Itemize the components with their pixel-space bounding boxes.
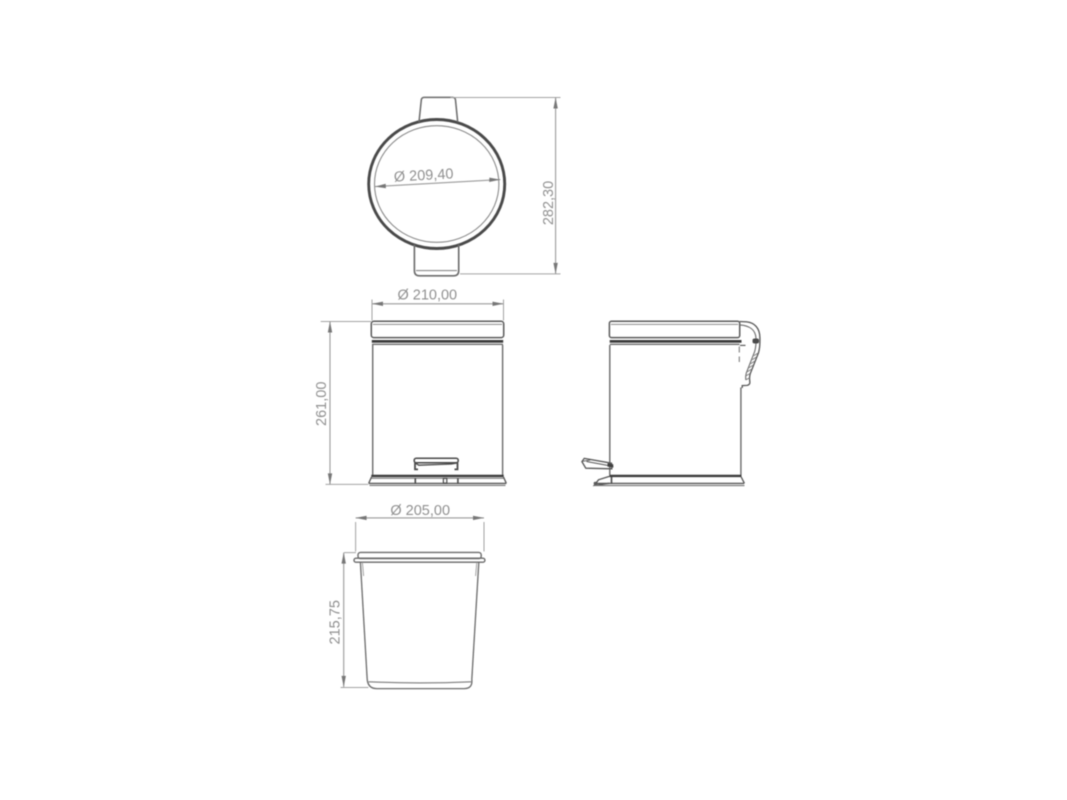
svg-text:261,00: 261,00 bbox=[314, 382, 330, 426]
svg-text:Ø 209,40: Ø 209,40 bbox=[393, 166, 453, 185]
svg-text:282,30: 282,30 bbox=[541, 181, 557, 225]
svg-text:Ø 210,00: Ø 210,00 bbox=[397, 288, 457, 304]
svg-text:215,75: 215,75 bbox=[328, 600, 344, 644]
svg-text:Ø 205,00: Ø 205,00 bbox=[390, 503, 450, 519]
